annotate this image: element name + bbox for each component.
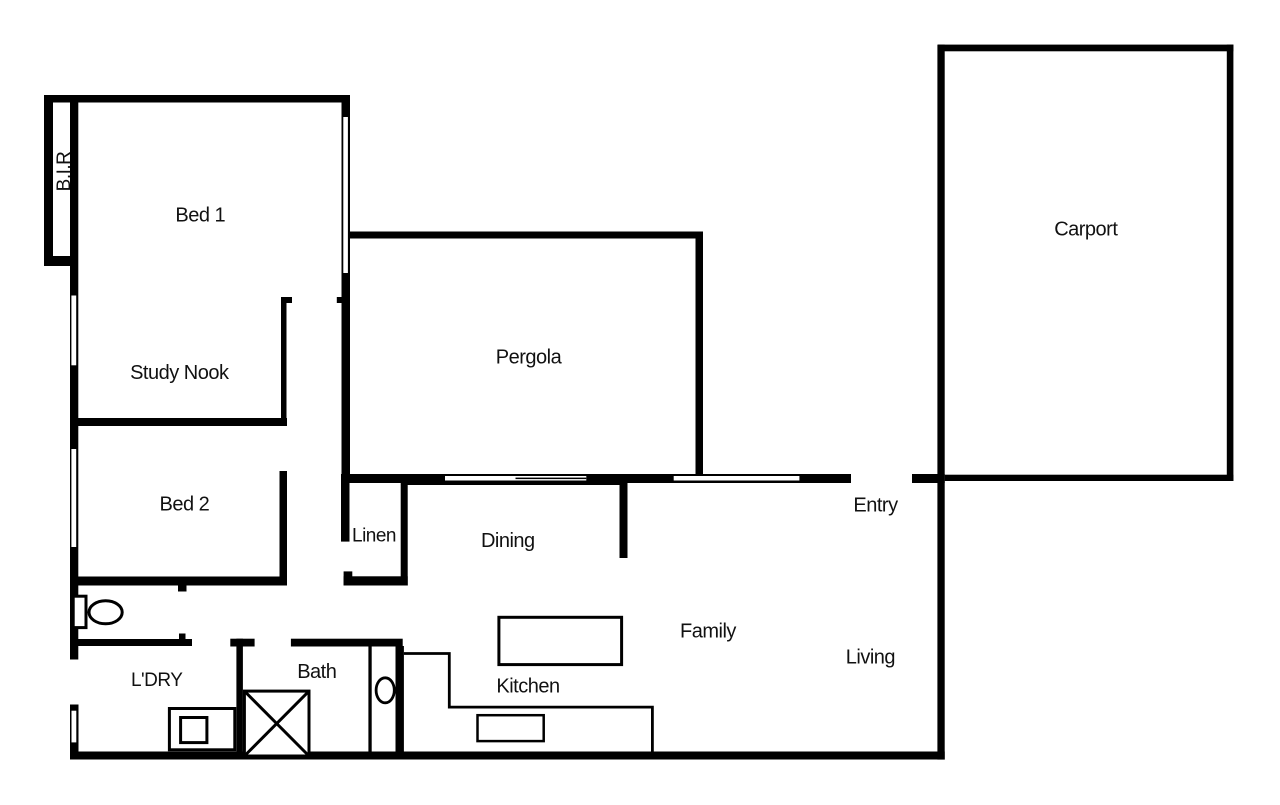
svg-text:Pergola: Pergola <box>496 347 563 369</box>
svg-text:B.I.R: B.I.R <box>54 152 75 192</box>
svg-text:Study Nook: Study Nook <box>130 362 230 384</box>
svg-text:Kitchen: Kitchen <box>496 676 559 698</box>
svg-text:Living: Living <box>846 647 895 669</box>
svg-text:L'DRY: L'DRY <box>131 670 183 691</box>
svg-text:Bed 1: Bed 1 <box>175 205 225 227</box>
svg-text:Linen: Linen <box>352 526 396 547</box>
svg-text:Dining: Dining <box>481 530 535 552</box>
svg-text:Entry: Entry <box>853 495 898 517</box>
svg-text:Bed 2: Bed 2 <box>160 494 210 516</box>
svg-text:Bath: Bath <box>297 661 336 683</box>
svg-text:Family: Family <box>680 621 736 643</box>
svg-text:Carport: Carport <box>1054 218 1118 240</box>
